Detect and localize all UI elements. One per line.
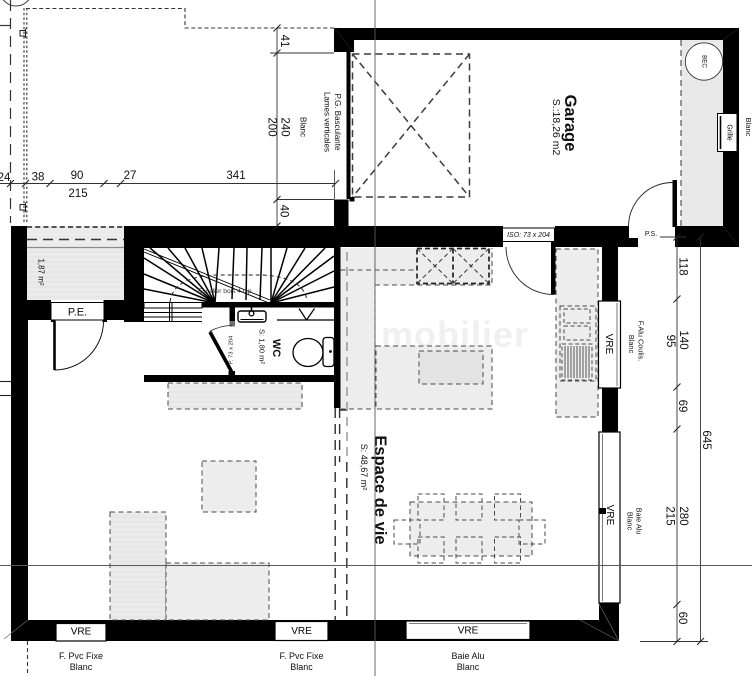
- svg-text:40: 40: [278, 205, 290, 218]
- svg-text:Blanc: Blanc: [627, 335, 636, 354]
- svg-text:Blanc: Blanc: [457, 662, 480, 672]
- svg-text:Blanc: Blanc: [299, 117, 308, 137]
- svg-text:1,87 m²: 1,87 m²: [37, 258, 46, 285]
- svg-text:Baie Alu: Baie Alu: [451, 651, 484, 661]
- svg-text:69: 69: [676, 400, 688, 413]
- svg-text:S.:18,26 m2: S.:18,26 m2: [550, 99, 562, 156]
- svg-text:P.E.: P.E.: [68, 306, 87, 318]
- svg-text:P.S.: P.S.: [645, 231, 657, 238]
- svg-text:S: 48,67 m²: S: 48,67 m²: [359, 444, 369, 491]
- svg-text:645: 645: [700, 430, 712, 449]
- svg-text:VRE: VRE: [603, 334, 614, 355]
- svg-text:VRE: VRE: [604, 505, 615, 526]
- svg-text:27: 27: [124, 170, 137, 182]
- svg-text:BEC: BEC: [701, 55, 708, 68]
- svg-text:F.Alu Coulis.: F.Alu Coulis.: [637, 321, 646, 362]
- svg-text:P. 73 x 204: P. 73 x 204: [229, 335, 235, 364]
- svg-text:ISO: 73 x 204: ISO: 73 x 204: [507, 232, 550, 239]
- svg-text:VRE: VRE: [458, 626, 479, 637]
- svg-text:60: 60: [676, 612, 688, 625]
- svg-text:90: 90: [71, 170, 84, 182]
- svg-text:VRE: VRE: [71, 627, 92, 638]
- svg-text:VRE: VRE: [291, 626, 312, 637]
- svg-text:215: 215: [664, 506, 676, 525]
- svg-text:200: 200: [266, 117, 278, 136]
- svg-text:Garage: Garage: [561, 95, 579, 152]
- svg-text:Lames verticales: Lames verticales: [323, 92, 332, 152]
- svg-text:WC: WC: [270, 339, 282, 357]
- svg-text:Blanc: Blanc: [744, 118, 752, 137]
- svg-text:Blanc: Blanc: [626, 512, 635, 531]
- svg-text:95: 95: [664, 335, 676, 348]
- svg-text:280: 280: [677, 506, 689, 525]
- svg-text:Baie Alu: Baie Alu: [635, 508, 644, 535]
- svg-text:P.G. Basculante: P.G. Basculante: [333, 94, 342, 151]
- svg-text:F. Pvc Fixe: F. Pvc Fixe: [59, 651, 103, 661]
- svg-text:Espace de vie: Espace de vie: [371, 435, 389, 544]
- svg-text:38: 38: [32, 172, 45, 184]
- svg-text:118: 118: [677, 257, 689, 275]
- svg-text:215: 215: [68, 188, 87, 200]
- svg-text:Blanc: Blanc: [70, 662, 93, 672]
- svg-text:Grille: Grille: [726, 124, 733, 140]
- svg-text:24: 24: [0, 172, 11, 184]
- svg-text:Escalier bois 4 c.p.: Escalier bois 4 c.p.: [198, 288, 254, 295]
- svg-text:341: 341: [226, 170, 245, 182]
- svg-text:140: 140: [677, 330, 689, 349]
- svg-text:S: 1,80 m²: S: 1,80 m²: [258, 329, 267, 364]
- svg-text:Blanc: Blanc: [290, 662, 313, 672]
- svg-text:240: 240: [279, 117, 291, 136]
- svg-text:41: 41: [278, 35, 290, 48]
- svg-text:F. Pvc Fixe: F. Pvc Fixe: [279, 651, 323, 661]
